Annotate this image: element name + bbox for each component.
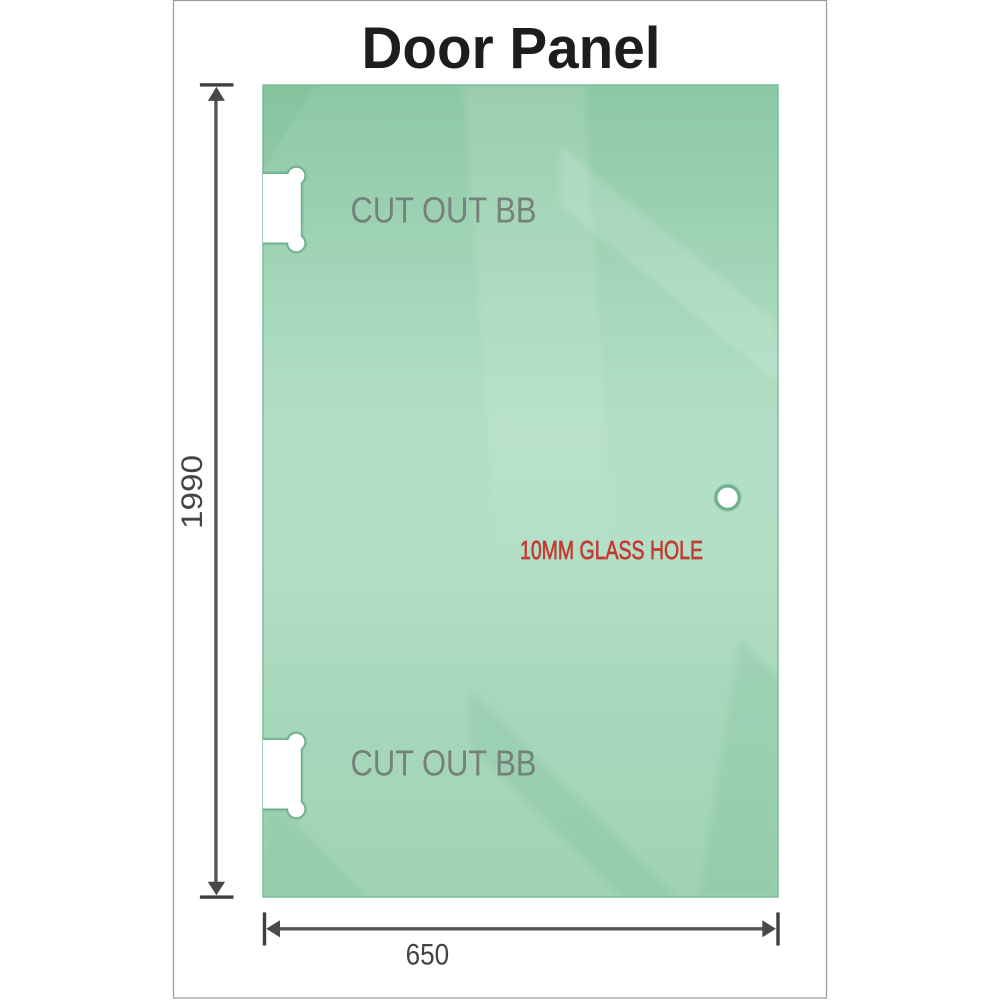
svg-text:CUT OUT BB: CUT OUT BB (351, 190, 537, 231)
svg-text:1990: 1990 (176, 455, 209, 529)
svg-text:650: 650 (406, 939, 450, 972)
svg-text:10MM GLASS HOLE: 10MM GLASS HOLE (520, 537, 703, 565)
svg-text:Door Panel: Door Panel (362, 16, 661, 81)
svg-text:CUT OUT BB: CUT OUT BB (351, 743, 537, 784)
